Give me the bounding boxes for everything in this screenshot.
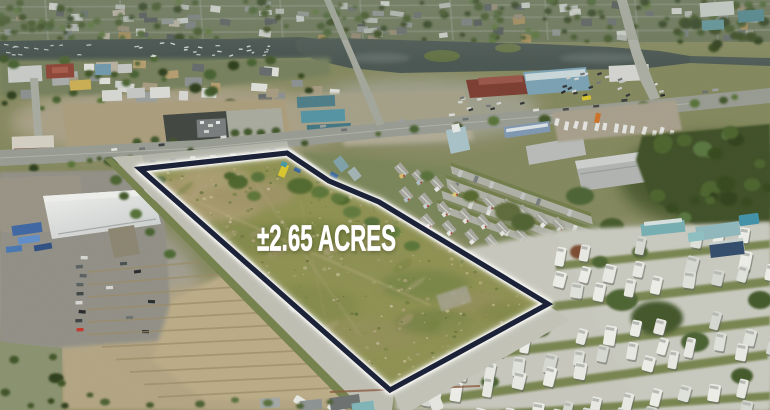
svg-text:±2.65 ACRES: ±2.65 ACRES — [257, 218, 396, 259]
